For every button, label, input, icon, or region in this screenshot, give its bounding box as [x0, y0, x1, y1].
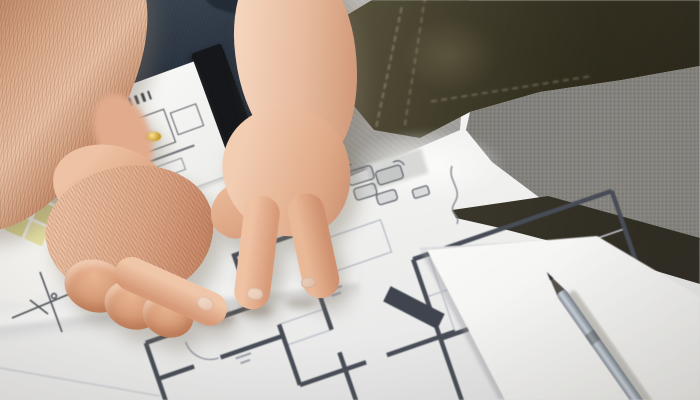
right-arm — [0, 0, 700, 400]
right-index-nail — [247, 287, 264, 300]
photo-stage — [0, 0, 700, 400]
